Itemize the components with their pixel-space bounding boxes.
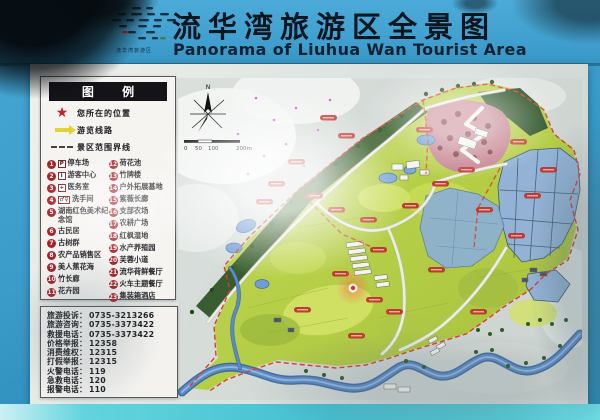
map-maple-area: [425, 100, 510, 173]
contact-row: 价格举报：12358: [47, 339, 171, 348]
contact-row: 救援电话：0735-3373422: [47, 330, 171, 339]
legend-item: 22火车主题餐厅: [109, 280, 172, 290]
legend-column-left: 1P停车场 2i游客中心 3+医务室 4♂♀洗手间 5湖南红色美术纪念馆 6古民…: [47, 159, 109, 304]
svg-text:100: 100: [208, 146, 219, 152]
parking-icon: P: [58, 160, 66, 168]
info-icon: i: [58, 172, 66, 180]
legend-item: 16支部农场: [109, 207, 172, 217]
legend-item: 11花卉园: [47, 287, 109, 297]
tourist-map-sign-photo: 流华湾旅游区 流华湾旅游区全景图 Panorama of Liuhua Wan …: [0, 0, 600, 420]
contact-row: 旅游投诉：0735-3213266: [47, 311, 171, 320]
contact-row: 急救电话：120: [47, 376, 171, 385]
page-title-en: Panorama of Liuhua Wan Tourist Area: [173, 40, 527, 59]
legend-item: 23集装箱酒店: [109, 292, 172, 302]
legend-item: 2i游客中心: [47, 171, 109, 181]
legend-title: 图 例: [49, 82, 167, 101]
legend-item: 5湖南红色美术纪念馆: [47, 207, 109, 224]
legend-item: 1P停车场: [47, 159, 109, 169]
contact-row: 打假举报：12315: [47, 357, 171, 366]
legend-item: 19水产养殖园: [109, 244, 172, 254]
dashed-line-icon: [51, 146, 73, 148]
red-star-icon: ★: [56, 106, 69, 120]
legend-item: 20芙蓉小道: [109, 256, 172, 266]
panorama-map: N 0 50 100 200m: [178, 78, 582, 400]
legend-item: 10竹长廊: [47, 275, 109, 285]
legend-item: 3+医务室: [47, 183, 109, 193]
legend-item: 14户外拓展基地: [109, 183, 172, 193]
legend-item: 4♂♀洗手间: [47, 195, 109, 205]
you-are-here-marker: [336, 271, 370, 305]
legend-column-right: 12荷花池 13竹牌楼 14户外拓展基地 15紫薇长廊 16支部农场 17农耕广…: [109, 159, 172, 304]
sign-header: 流华湾旅游区 流华湾旅游区全景图 Panorama of Liuhua Wan …: [0, 0, 600, 64]
svg-text:0: 0: [184, 146, 188, 152]
legend-item: 13竹牌楼: [109, 171, 172, 181]
sign-frame-bottom: [0, 404, 600, 420]
legend-item: 18红枫湿地: [109, 232, 172, 242]
legend-item: 9美人蕉花海: [47, 263, 109, 273]
yellow-arrow-icon: [55, 128, 70, 132]
contact-row: 火警电话：119: [47, 367, 171, 376]
svg-text:N: N: [206, 84, 211, 91]
svg-text:50: 50: [195, 146, 202, 152]
legend-you-are-here: ★ 您所在的位置: [47, 105, 169, 121]
legend-item: 12荷花池: [109, 159, 172, 169]
contact-row: 报警电话：110: [47, 385, 171, 394]
restroom-icon: ♂♀: [58, 196, 70, 204]
legend-boundary: 景区范围界线: [47, 139, 169, 155]
medical-cross-icon: +: [58, 184, 66, 192]
contact-row: 旅游咨询：0735-3373422: [47, 320, 171, 329]
legend-item: 21流华荷鲜餐厅: [109, 268, 172, 278]
contact-panel: 旅游投诉：0735-3213266 旅游咨询：0735-3373422 救援电话…: [40, 306, 178, 398]
legend-item: 7古树群: [47, 239, 109, 249]
legend-item: 15紫薇长廊: [109, 195, 172, 205]
logo-caption: 流华湾旅游区: [116, 47, 152, 54]
svg-text:200m: 200m: [236, 146, 252, 152]
legend-panel: 图 例 ★ 您所在的位置 游览线路 景区范围界线 1P停车场 2i游客中心 3+…: [40, 76, 176, 300]
legend-tour-route: 游览线路: [47, 122, 169, 138]
legend-item: 6古民居: [47, 227, 109, 237]
legend-numbered-grid: 1P停车场 2i游客中心 3+医务室 4♂♀洗手间 5湖南红色美术纪念馆 6古民…: [47, 159, 172, 304]
legend-item: 17农耕广场: [109, 219, 172, 229]
legend-item: 8农产品销售区: [47, 251, 109, 261]
